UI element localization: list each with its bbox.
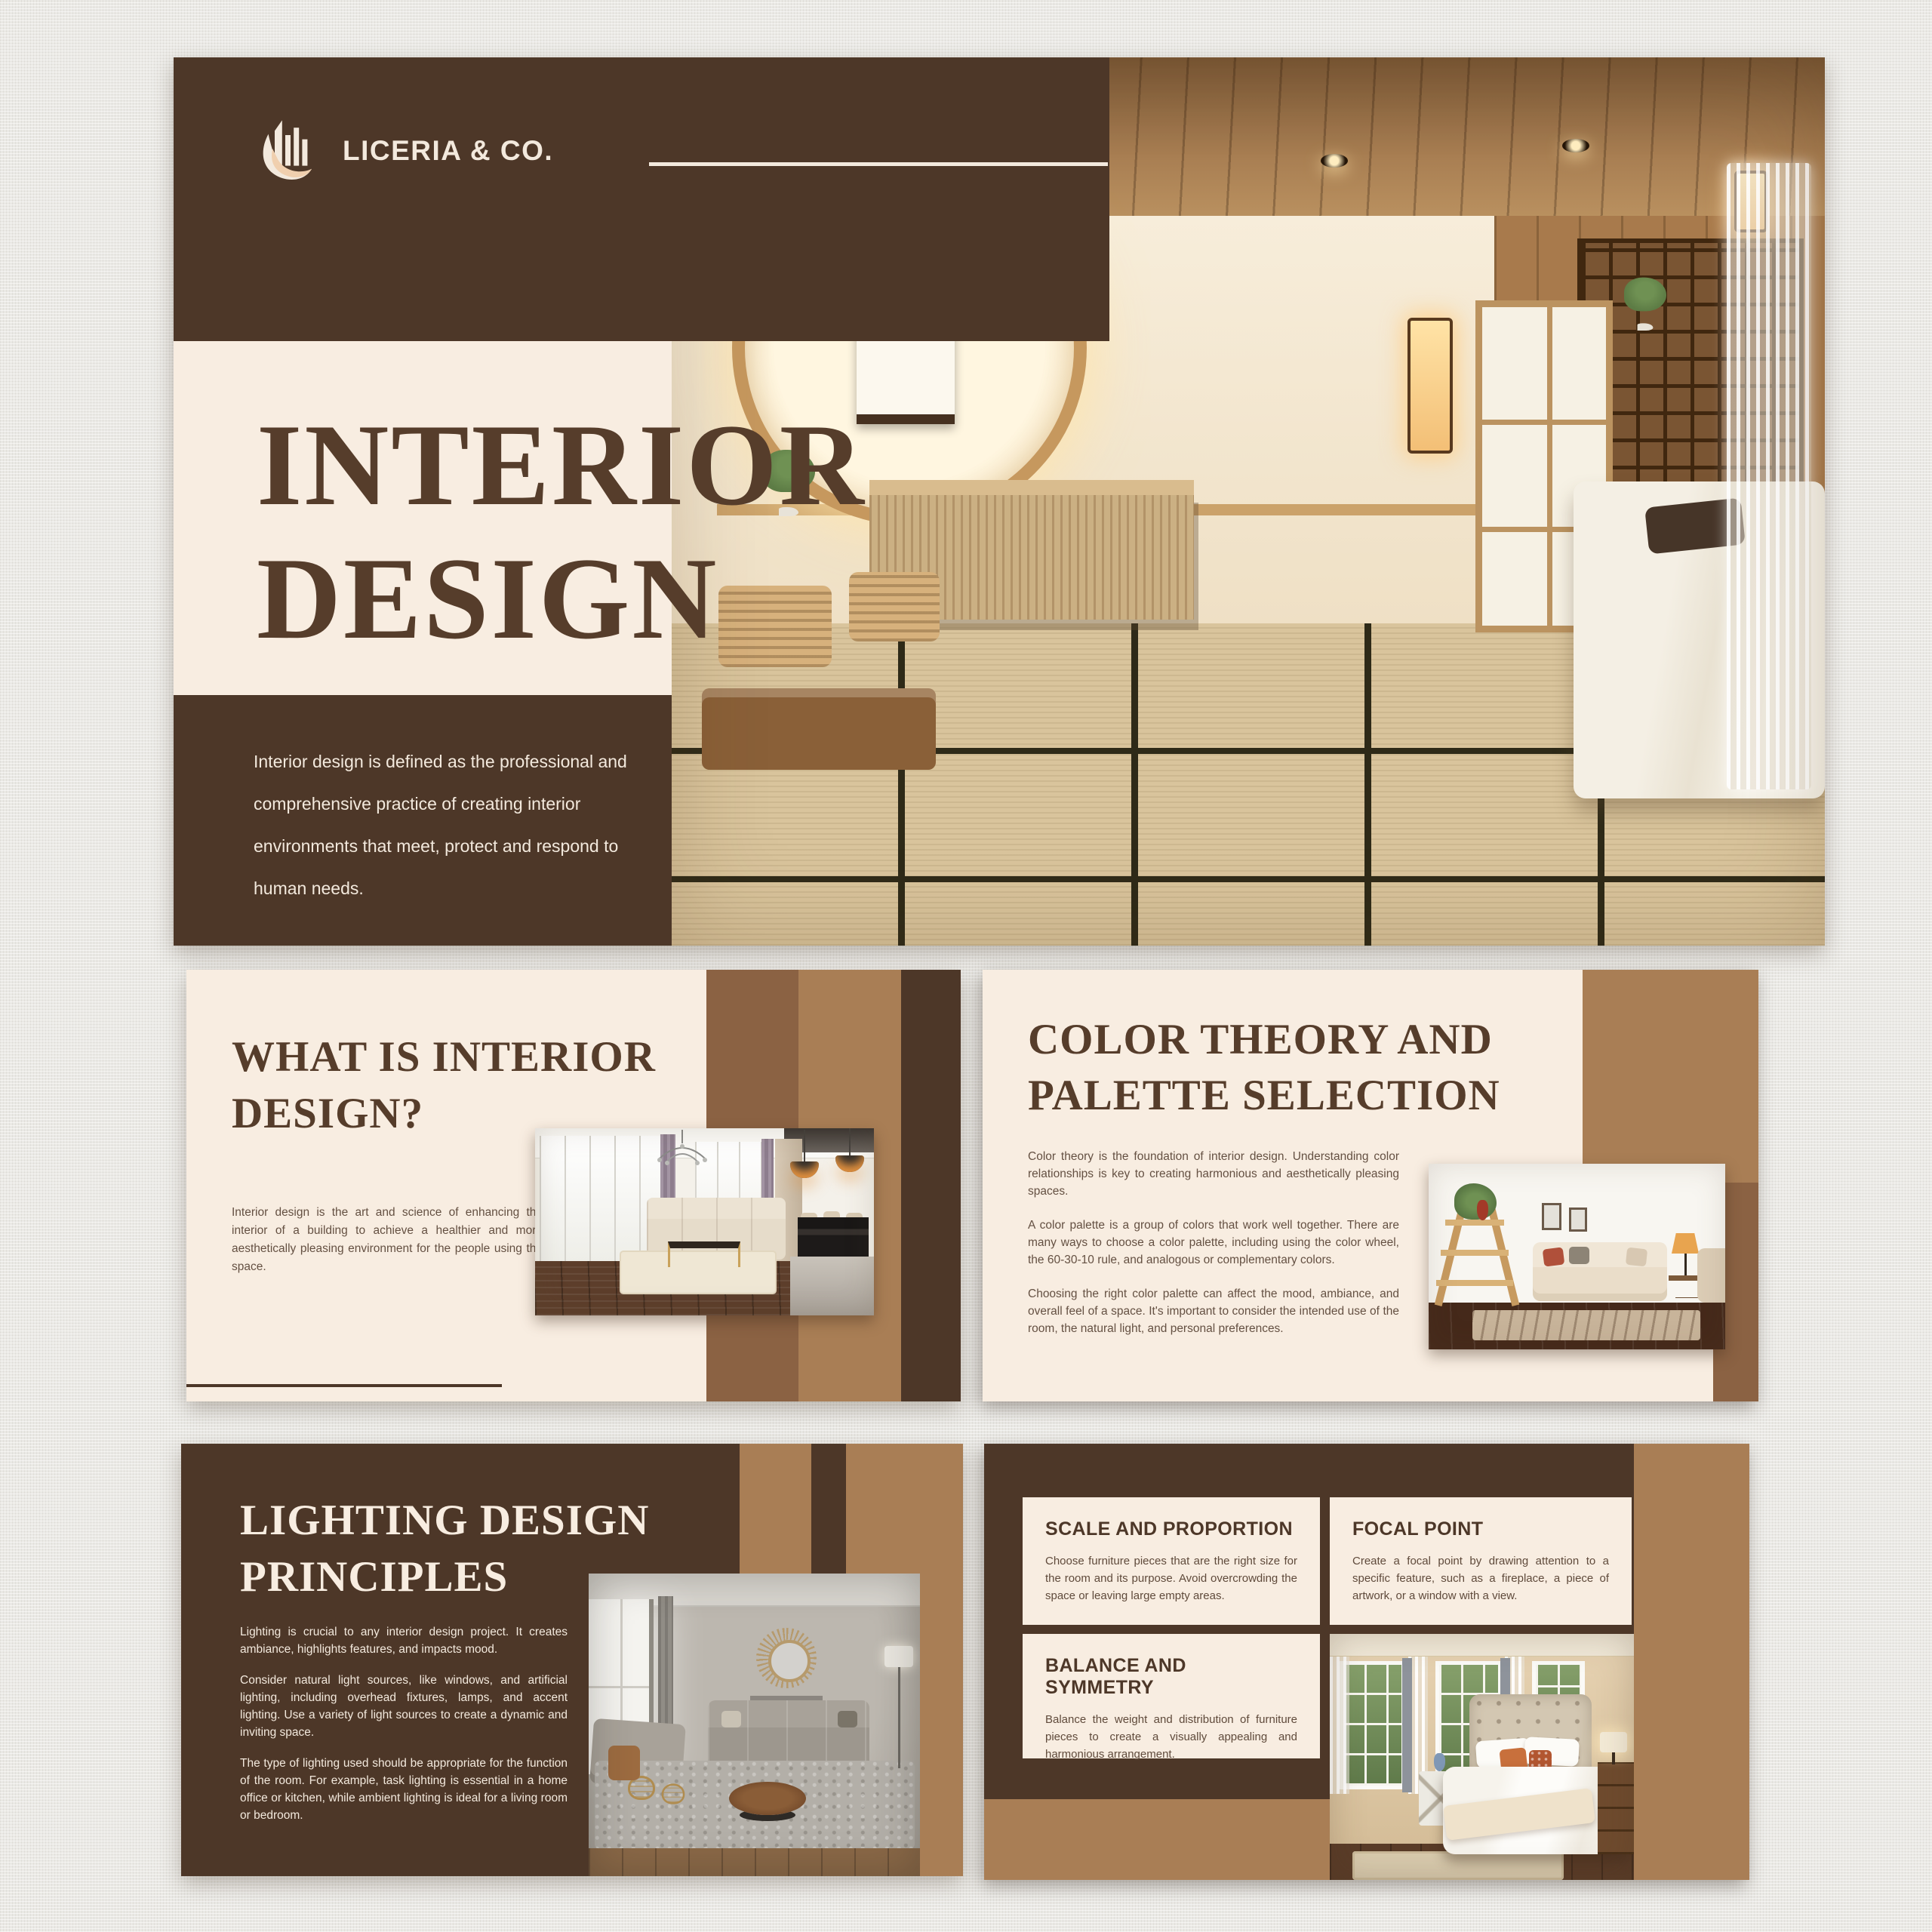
photo-vignette (1330, 1634, 1634, 1880)
slide3-body: Color theory is the foundation of interi… (1028, 1148, 1399, 1354)
card-scale-and-proportion: SCALE AND PROPORTION Choose furniture pi… (1023, 1497, 1320, 1625)
card-body: Create a focal point by drawing attentio… (1352, 1552, 1609, 1604)
slide4-title-line2: PRINCIPLES (240, 1553, 508, 1601)
presentation-template-canvas: LICERIA & CO. INTERIOR DESIGN Interior d… (0, 0, 1932, 1932)
photo-vignette (1429, 1164, 1725, 1349)
slide-furniture-principles: SCALE AND PROPORTION Choose furniture pi… (984, 1444, 1749, 1880)
photo-bedroom-garden-view (1330, 1634, 1634, 1880)
photo-vignette (535, 1128, 874, 1315)
slide4-body: Lighting is crucial to any interior desi… (240, 1623, 568, 1838)
card-heading: SCALE AND PROPORTION (1045, 1518, 1297, 1540)
liceria-logo-icon (254, 116, 317, 186)
card-heading: BALANCE AND SYMMETRY (1045, 1655, 1297, 1699)
card-body: Balance the weight and distribution of f… (1045, 1711, 1297, 1763)
slide4-paragraph-2: Consider natural light sources, like win… (240, 1672, 568, 1741)
main-title: INTERIOR DESIGN (257, 398, 866, 666)
slide3-paragraph-2: A color palette is a group of colors tha… (1028, 1217, 1399, 1269)
accent-band-right (1634, 1444, 1749, 1880)
slide2-paragraph: Interior design is the art and science o… (232, 1204, 543, 1276)
main-title-line1: INTERIOR (257, 400, 866, 530)
slide-title: LICERIA & CO. INTERIOR DESIGN Interior d… (174, 57, 1825, 946)
photo-neutral-living-room (1429, 1164, 1725, 1349)
footer-accent-line (186, 1384, 502, 1387)
card-body: Choose furniture pieces that are the rig… (1045, 1552, 1297, 1604)
slide3-title: COLOR THEORY AND PALETTE SELECTION (1028, 1012, 1500, 1124)
main-title-line2: DESIGN (257, 534, 718, 663)
accent-stripe-dark (811, 1444, 846, 1574)
accent-band-bottom (984, 1799, 1330, 1880)
intro-text: Interior design is defined as the profes… (254, 740, 667, 909)
card-heading: FOCAL POINT (1352, 1518, 1609, 1540)
accent-block-tan (1583, 970, 1758, 1183)
slide-color-theory: COLOR THEORY AND PALETTE SELECTION Color… (983, 970, 1758, 1401)
header-divider-line (649, 162, 1108, 166)
brand-name: LICERIA & CO. (343, 135, 553, 167)
slide4-paragraph-3: The type of lighting used should be appr… (240, 1755, 568, 1824)
accent-stripe-dark-brown (901, 970, 961, 1401)
slide-lighting-principles: LIGHTING DESIGN PRINCIPLES Lighting is c… (181, 1444, 963, 1876)
slide2-title-line2: DESIGN? (232, 1090, 423, 1137)
intro-text-panel: Interior design is defined as the profes… (174, 695, 672, 946)
title-slide-header: LICERIA & CO. (174, 57, 1109, 341)
slide4-title-line1: LIGHTING DESIGN (240, 1497, 649, 1544)
photo-vignette (589, 1574, 920, 1876)
brand-logo: LICERIA & CO. (254, 116, 553, 186)
card-focal-point: FOCAL POINT Create a focal point by draw… (1330, 1497, 1632, 1625)
slide3-title-line2: PALETTE SELECTION (1028, 1072, 1500, 1119)
slide3-paragraph-1: Color theory is the foundation of interi… (1028, 1148, 1399, 1200)
slide2-body: Interior design is the art and science o… (232, 1204, 543, 1276)
slide3-title-line1: COLOR THEORY AND (1028, 1016, 1493, 1063)
slide3-paragraph-3: Choosing the right color palette can aff… (1028, 1285, 1399, 1337)
photo-gray-living-room (589, 1574, 920, 1876)
slide2-title-line1: WHAT IS INTERIOR (232, 1033, 656, 1081)
card-balance-and-symmetry: BALANCE AND SYMMETRY Balance the weight … (1023, 1634, 1320, 1758)
slide-what-is-interior-design: WHAT IS INTERIOR DESIGN? Interior design… (186, 970, 961, 1401)
slide2-title: WHAT IS INTERIOR DESIGN? (232, 1029, 656, 1142)
photo-bright-living-room (535, 1128, 874, 1315)
slide4-paragraph-1: Lighting is crucial to any interior desi… (240, 1623, 568, 1658)
